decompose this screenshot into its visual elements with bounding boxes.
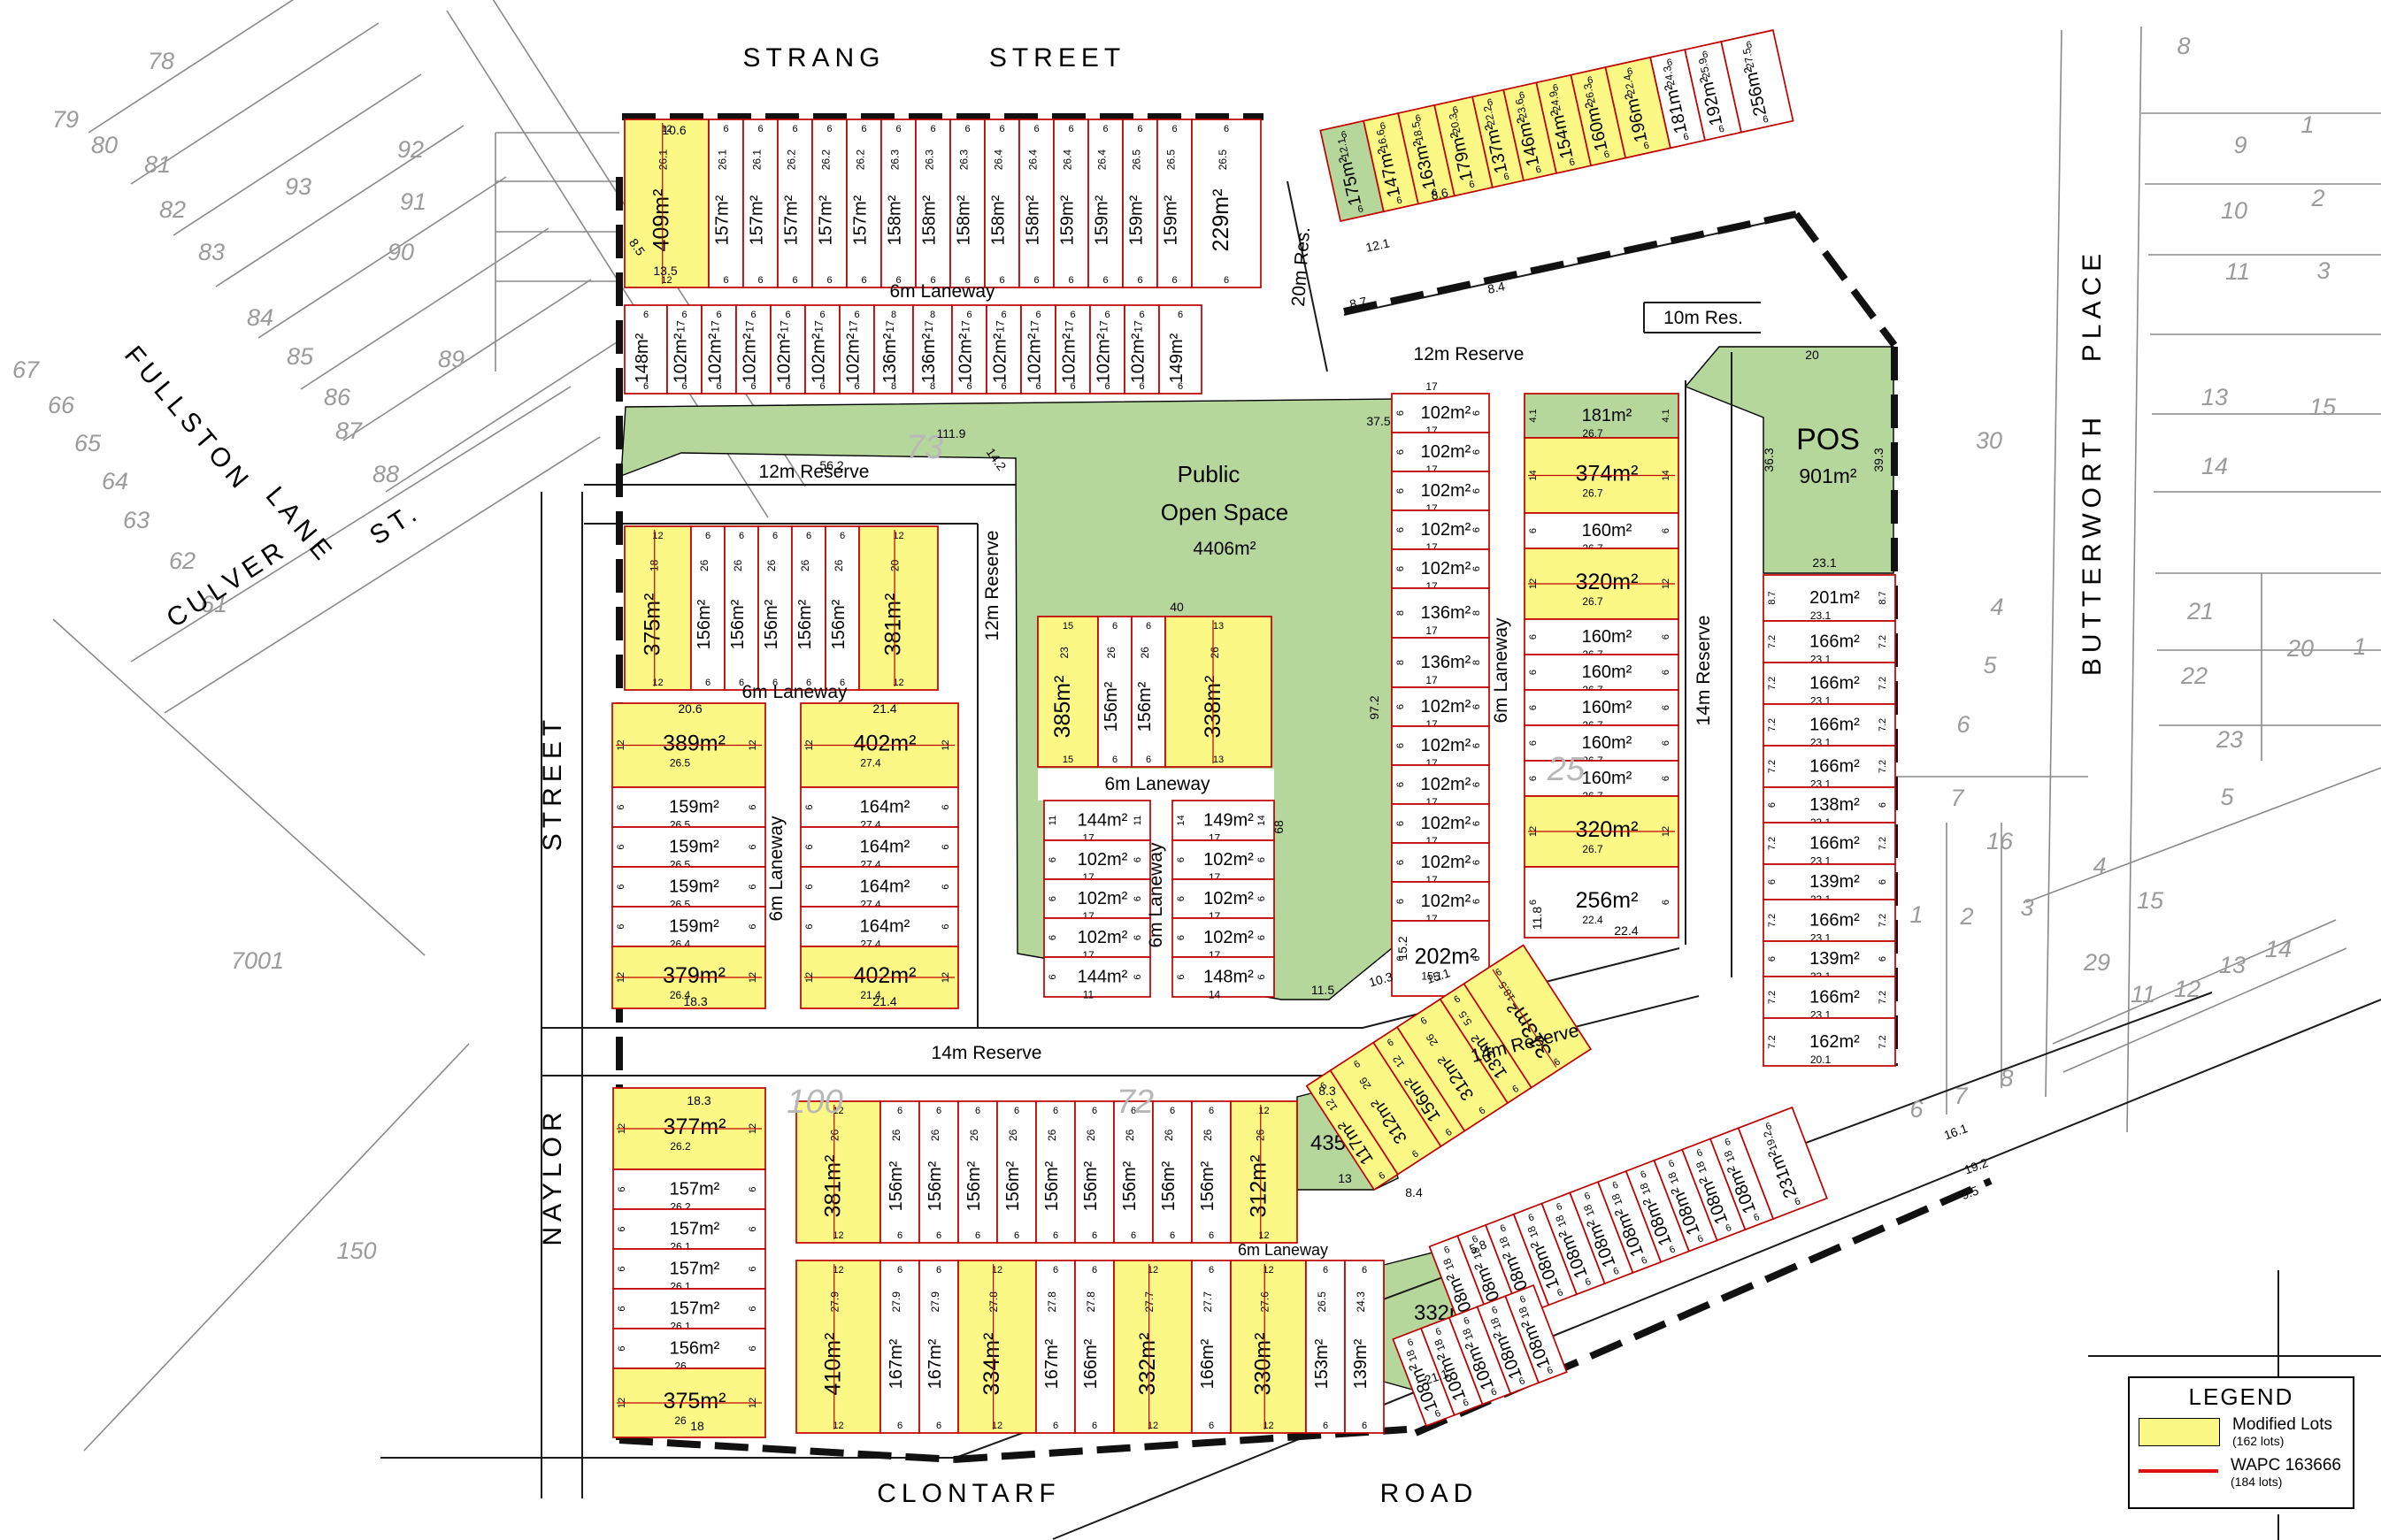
lot-dim: 17	[710, 320, 722, 333]
lot-edge-dim: 6	[748, 1226, 758, 1231]
lot-edge-dim: 8	[930, 381, 935, 392]
lot-area: 156m²	[887, 1161, 906, 1211]
cadastre-lot-number: 86	[324, 384, 351, 410]
lot-dim: 26.1	[657, 149, 670, 171]
lot-edge-dim: 6	[854, 310, 859, 320]
cadastre-lot-number: 64	[102, 468, 128, 494]
lot-edge-dim: 6	[748, 1306, 758, 1311]
cadastre-lot-number: 15	[2309, 394, 2337, 420]
lot-dim: 26	[833, 559, 845, 571]
lot-edge-dim: 6	[1133, 974, 1143, 979]
lot-area: 166m²	[1081, 1338, 1101, 1389]
lot-area: 102m²	[775, 333, 795, 383]
lot-edge-dim: 6	[1146, 755, 1151, 765]
lot-area: 102m²	[1078, 928, 1128, 947]
cadastre-lot-number: 22	[2180, 663, 2208, 689]
open-space-label: POS	[1796, 423, 1860, 456]
lot-dim: 17	[779, 320, 791, 333]
dimension-label: 111.9	[937, 426, 966, 441]
lot-edge-dim: 6	[1661, 900, 1671, 905]
lot-area: 159m²	[1093, 195, 1112, 245]
lot-edge-dim: 6	[1323, 1265, 1328, 1276]
cadastre-lot-number: 65	[74, 430, 102, 456]
lot-dim: 23	[1058, 647, 1071, 659]
lot-edge-dim: 8	[891, 310, 896, 320]
lot-edge-dim: 8	[1471, 660, 1482, 665]
lot-area: 385m²	[1050, 676, 1075, 739]
lot-dim: 26.5	[1131, 149, 1143, 171]
lot-edge-dim: 6	[1209, 1421, 1214, 1431]
lot-edge-dim: 6	[1171, 275, 1177, 286]
lot-edge-dim: 6	[1001, 310, 1006, 320]
lot-edge-dim: 6	[1878, 879, 1888, 885]
street-name: CLONTARF	[877, 1479, 1060, 1508]
lot-edge-dim: 6	[840, 531, 845, 541]
cadastre-lot-number: 63	[123, 507, 150, 533]
lot-edge-dim: 6	[785, 310, 790, 320]
lot-edge-dim: 6	[819, 310, 825, 320]
lot-edge-dim: 6	[705, 531, 710, 541]
lot-edge-dim: 6	[1131, 1230, 1136, 1241]
cadastre-lot-number: 4	[2093, 853, 2106, 879]
cadastre-lot-number: 14	[2265, 936, 2292, 962]
lot-dim: 26.4	[1027, 149, 1040, 171]
open-space-label: 901m²	[1799, 464, 1857, 487]
lot-edge-dim: 6	[1070, 381, 1075, 392]
lot-edge-dim: 6	[1102, 124, 1108, 134]
lot-edge-dim: 6	[1528, 776, 1539, 781]
lot-block-block-375-381: 375m²181212156m²2666156m²2666156m²266615…	[625, 526, 938, 690]
lot-dim: 26.2	[855, 149, 867, 171]
cadastre-lot-number: 90	[388, 239, 414, 265]
lot-area: 148m²	[1203, 968, 1254, 987]
lot-area: 330m²	[1251, 1333, 1276, 1396]
lot-area: 160m²	[1582, 698, 1632, 717]
lot-area: 166m²	[1809, 988, 1860, 1008]
lot-area: 102m²	[1129, 333, 1148, 383]
lot-dim: 20.1	[1810, 1053, 1832, 1066]
lot-area: 159m²	[669, 798, 719, 817]
lot-edge-dim: 6	[1256, 857, 1267, 862]
lot-edge-dim: 6	[1224, 124, 1229, 134]
lot-area: 139m²	[1351, 1338, 1371, 1389]
lot-edge-dim: 6	[1471, 821, 1482, 826]
lot-dim: 26.7	[1582, 595, 1603, 608]
lot-edge-dim: 6	[757, 124, 763, 134]
underlying-lot-watermark: 100	[787, 1084, 842, 1121]
lot-area: 256m²	[1576, 888, 1639, 913]
lot-edge-dim: 6	[941, 844, 951, 849]
lot-dim: 17	[813, 320, 826, 333]
lot-edge-dim: 6	[941, 884, 951, 889]
reserve-label: 6m Laneway	[1238, 1241, 1328, 1259]
street-name: STRANG	[742, 43, 885, 73]
lot-edge-dim: 6	[1033, 275, 1039, 286]
lot-block-block-385-338: 385m²231515156m²2666156m²2666338m²261313	[1038, 617, 1271, 767]
lot-area: 159m²	[669, 917, 719, 937]
lot-edge-dim: 6	[1048, 896, 1058, 901]
cadastre-lot-number: 150	[336, 1237, 376, 1264]
lot-edge-dim: 7.2	[1767, 718, 1778, 732]
lot-dim: 17	[923, 320, 935, 333]
lot-area: 402m²	[854, 963, 917, 988]
cadastre-lot-number: 3	[2316, 257, 2330, 284]
lot-edge-dim: 8	[1395, 660, 1406, 665]
cadastre-lot-number: 3	[2020, 894, 2033, 921]
lot-dim: 17	[1098, 320, 1110, 333]
lot-edge-dim: 7.2	[1767, 837, 1778, 850]
lot-edge-dim: 6	[1256, 935, 1267, 940]
reserve-label: 12m Reserve	[982, 531, 1002, 641]
lot-area: 167m²	[926, 1338, 945, 1389]
lot-edge-dim: 7.2	[1878, 837, 1888, 850]
lot-dim: 17	[848, 320, 860, 333]
lot-area: 375m²	[664, 1389, 726, 1414]
dimension-label: 97.2	[1367, 695, 1381, 719]
lot-edge-dim: 6	[826, 124, 832, 134]
lot-edge-dim: 6	[1362, 1265, 1367, 1276]
lot-dim: 26.2	[670, 1140, 691, 1153]
lot-edge-dim: 6	[723, 275, 728, 286]
lot-dim: 27.9	[890, 1291, 902, 1313]
lot-area: 158m²	[955, 195, 974, 245]
lot-edge-dim: 6	[1395, 488, 1406, 494]
lot-area: 102m²	[1060, 333, 1079, 383]
lot-area: 159m²	[1127, 195, 1147, 245]
lot-area: 156m²	[728, 599, 748, 649]
lot-area: 102m²	[1203, 889, 1254, 908]
lot-area: 181m²	[1582, 406, 1632, 425]
dimension-label: 15.2	[1395, 936, 1409, 960]
subdivision-plan-page: 435m²332m²409m²26.11212157m²26.166157m²2…	[0, 0, 2381, 1540]
lot-dim: 17	[675, 320, 687, 333]
lot-area: 166m²	[1809, 716, 1860, 735]
lot-area: 409m²	[649, 189, 674, 252]
lot-edge-dim: 6	[966, 310, 972, 320]
cadastre-lot-number: 1	[1909, 901, 1923, 928]
lot-edge-dim: 6	[716, 310, 721, 320]
dimension-label: 56.2	[819, 458, 843, 472]
cadastre-lot-number: 78	[148, 48, 174, 74]
cadastre-lot-number: 13	[2201, 384, 2228, 410]
cadastre-lot-number: 8	[2177, 33, 2190, 59]
lot-block-strang-row: 409m²26.11212157m²26.166157m²26.166157m²…	[625, 119, 1261, 287]
lot-edge-dim: 6	[1528, 900, 1539, 905]
cadastre-lot-number: 92	[397, 136, 424, 163]
lot-edge-dim: 6	[861, 275, 866, 286]
street-name: STREET	[989, 43, 1125, 73]
lot-dim: 17	[744, 320, 757, 333]
lot-edge-dim: 6	[1878, 802, 1888, 808]
lot-area: 156m²	[964, 1161, 984, 1211]
dimension-label: 68	[1271, 820, 1286, 834]
legend: LEGEND Modified Lots (162 lots) WAPC 163…	[2128, 1376, 2354, 1509]
lot-edge-dim: 6	[616, 844, 626, 849]
lot-edge-dim: 6	[1014, 1230, 1019, 1241]
dimension-label: 11.8	[1530, 907, 1544, 930]
lot-area: 159m²	[1058, 195, 1078, 245]
lot-edge-dim: 7.2	[1878, 635, 1888, 648]
lot-area: 334m²	[979, 1333, 1004, 1396]
lot-edge-dim: 6	[1048, 857, 1058, 862]
lot-edge-dim: 6	[1395, 527, 1406, 532]
lot-edge-dim: 6	[966, 381, 972, 392]
lot-area: 153m²	[1312, 1338, 1332, 1389]
lot-edge-dim: 6	[1176, 896, 1187, 901]
cadastre-lot-number: 89	[438, 346, 465, 372]
lot-area: 136m²	[1421, 653, 1471, 672]
dimension-label: 23.1	[1812, 555, 1836, 570]
lot-dim: 26	[1007, 1129, 1019, 1141]
reserve-label: 6m Laneway	[1146, 842, 1166, 948]
street-name: NAYLOR	[538, 1107, 567, 1245]
lot-edge-dim: 6	[1033, 124, 1039, 134]
lot-area: 156m²	[829, 599, 849, 649]
dimension-label: 22.4	[1614, 923, 1638, 938]
lot-edge-dim: 7.2	[1878, 914, 1888, 927]
lot-edge-dim: 6	[748, 1186, 758, 1191]
lot-edge-dim: 7.2	[1767, 1035, 1778, 1048]
lot-edge-dim: 6	[1035, 381, 1041, 392]
lot-dim: 26.5	[1217, 149, 1229, 171]
lot-area: 164m²	[860, 838, 910, 857]
lot-area: 156m²	[670, 1339, 720, 1359]
cadastre-lot-number: 91	[400, 188, 426, 215]
lot-edge-dim: 6	[1767, 802, 1778, 808]
cadastre-lot-number: 88	[373, 461, 399, 487]
open-space-label: Open Space	[1161, 499, 1289, 525]
lot-area: 402m²	[854, 732, 917, 756]
lot-edge-dim: 7.2	[1878, 718, 1888, 732]
lot-dim: 26	[1105, 647, 1118, 659]
reserve-label: 6m Laneway	[766, 816, 787, 922]
lot-block-col-102-center: 102m²1766102m²1766102m²1766102m²1766102m…	[1392, 394, 1489, 996]
lot-edge-dim: 6	[1528, 634, 1539, 640]
wapc-line-swatch	[2139, 1469, 2218, 1473]
dimension-label: 18	[690, 1419, 704, 1433]
legend-sublabel: (162 lots)	[2232, 1435, 2332, 1448]
lot-edge-dim: 7.2	[1878, 760, 1888, 773]
lot-dim: 26	[890, 1129, 902, 1141]
lot-area: 139m²	[1809, 872, 1860, 892]
lot-edge-dim: 6	[941, 804, 951, 809]
cadastre-lot-number: 84	[247, 304, 273, 331]
lot-area: 156m²	[795, 599, 815, 649]
lot-dim: 26.4	[1062, 149, 1074, 171]
lot-area: 102m²	[1421, 403, 1471, 423]
lot-edge-dim: 6	[772, 531, 778, 541]
lot-edge-dim: 6	[681, 310, 687, 320]
lot-dim: 14	[1209, 989, 1221, 1001]
dimension-label: 8.3	[1318, 1084, 1336, 1098]
lot-edge-dim: 6	[1053, 1421, 1058, 1431]
lot-edge-dim: 6	[804, 804, 815, 809]
lot-block-col-201-162: 201m²23.18.78.7166m²23.17.27.2166m²23.17…	[1763, 575, 1895, 1066]
cadastre-lot-number: 16	[1986, 828, 2014, 854]
lot-edge-dim: 8	[891, 381, 896, 392]
lot-dim: 27.4	[860, 757, 881, 770]
lot-dim: 26	[1085, 1129, 1097, 1141]
cadastre-lot-number: 85	[287, 343, 314, 370]
cadastre-lot-number: 20	[2286, 635, 2314, 662]
lot-edge-dim: 6	[705, 678, 710, 688]
lot-edge-dim: 6	[1001, 381, 1006, 392]
lot-dim: 26.2	[820, 149, 833, 171]
lot-dim: 26.7	[1582, 843, 1603, 855]
dimension-label: 13.5	[653, 264, 677, 278]
legend-sublabel: (184 lots)	[2231, 1475, 2341, 1489]
legend-item-wapc: WAPC 163666 (184 lots)	[2139, 1457, 2344, 1489]
reserve-label: 14m Reserve	[1694, 616, 1714, 726]
lot-area: 102m²	[810, 333, 829, 383]
lot-edge-dim: 6	[1133, 935, 1143, 940]
reserve-label: 6m Laneway	[1104, 774, 1210, 794]
lot-edge-dim: 6	[1171, 124, 1177, 134]
lot-area: 156m²	[1135, 681, 1155, 732]
lot-area: 157m²	[851, 195, 871, 245]
lot-dim: 26.3	[889, 149, 902, 171]
lot-edge-dim: 6	[1767, 879, 1778, 885]
cadastre-lot-number: 80	[91, 132, 118, 158]
lot-area: 332m²	[1135, 1333, 1160, 1396]
lot-edge-dim: 6	[1170, 1106, 1175, 1116]
lot-edge-dim: 7.2	[1878, 677, 1888, 690]
lot-dim: 27.8	[1046, 1291, 1058, 1313]
lot-edge-dim: 6	[1878, 956, 1888, 962]
lot-area: 157m²	[670, 1260, 720, 1279]
street-name: ROAD	[1380, 1479, 1479, 1508]
lot-block-col-402: 402m²27.41212164m²27.466164m²27.466164m²…	[801, 703, 958, 1008]
lot-area: 156m²	[1081, 1161, 1101, 1211]
cadastre-lot-number: 11	[2131, 981, 2155, 1008]
lot-edge-dim: 6	[936, 1421, 941, 1431]
cadastre-lot-number: 4	[1990, 594, 2003, 620]
lot-edge-dim: 6	[1256, 974, 1267, 979]
lot-edge-dim: 6	[643, 381, 649, 392]
lot-edge-dim: 6	[804, 844, 815, 849]
cadastre-lot-number: 79	[52, 106, 79, 133]
lot-edge-dim: 6	[1471, 410, 1482, 416]
lot-area: 148m²	[633, 333, 652, 383]
lot-area: 166m²	[1809, 674, 1860, 693]
lot-area: 162m²	[1809, 1032, 1860, 1052]
lot-edge-dim: 6	[617, 1345, 627, 1351]
lot-area: 375m²	[641, 594, 665, 656]
lot-edge-dim: 6	[748, 804, 758, 809]
lot-dim: 27.9	[929, 1291, 941, 1313]
lot-area: 156m²	[1003, 1161, 1023, 1211]
lot-edge-dim: 6	[941, 923, 951, 929]
dimension-label: 20.6	[678, 701, 702, 716]
lot-area: 102m²	[706, 333, 726, 383]
underlying-lot-watermark: 72	[1117, 1084, 1154, 1121]
lot-area: 102m²	[741, 333, 760, 383]
lot-edge-dim: 6	[1133, 857, 1143, 862]
lot-block-col-149: 149m²171414102m²1766102m²1766102m²176614…	[1172, 801, 1274, 1001]
lot-dim: 23.1	[1810, 609, 1832, 622]
lot-edge-dim: 6	[1112, 755, 1118, 765]
legend-label: WAPC 163666	[2231, 1457, 2341, 1475]
lot-dim: 26.4	[993, 149, 1005, 171]
lot-area: 379m²	[663, 963, 726, 988]
lot-area: 157m²	[817, 195, 836, 245]
cadastre-lot-number: 5	[2220, 784, 2234, 810]
lot-block-row-381-312: 381m²261212156m²2666156m²2666156m²266615…	[796, 1101, 1297, 1243]
lot-edge-dim: 6	[748, 884, 758, 889]
cadastre-lot-number: 6	[1909, 1096, 1924, 1122]
lot-edge-dim: 6	[861, 124, 866, 134]
lot-edge-dim: 6	[1661, 634, 1671, 640]
lot-area: 381m²	[821, 1155, 846, 1218]
reserve-label: 12m Reserve	[759, 462, 870, 482]
lot-edge-dim: 6	[936, 1265, 941, 1276]
legend-title: LEGEND	[2139, 1383, 2344, 1411]
lot-edge-dim: 6	[804, 923, 815, 929]
lot-dim: 22.4	[1582, 914, 1603, 926]
open-space-label: 4406m²	[1193, 539, 1256, 559]
lot-area: 157m²	[670, 1299, 720, 1319]
lot-area: 157m²	[670, 1220, 720, 1239]
lot-area: 160m²	[1582, 733, 1632, 753]
lot-edge-dim: 6	[964, 124, 970, 134]
lot-area: 159m²	[669, 838, 719, 857]
cadastre-lot-number: 7001	[231, 947, 284, 974]
lot-area: 166m²	[1809, 632, 1860, 652]
lot-edge-dim: 6	[1395, 449, 1406, 455]
lot-dim: 26.1	[717, 149, 729, 171]
lot-area: 160m²	[1582, 663, 1632, 682]
lot-edge-dim: 6	[1471, 955, 1482, 961]
lot-area: 160m²	[1582, 769, 1632, 788]
lot-dim: 26	[799, 559, 811, 571]
lot-edge-dim: 8.7	[1878, 591, 1888, 604]
lot-dim: 26	[929, 1129, 941, 1141]
lot-dim: 26	[1124, 1129, 1136, 1141]
street-name: PLACE	[2078, 249, 2107, 362]
lot-area: 320m²	[1576, 817, 1639, 842]
dimension-label: 39.3	[1871, 448, 1886, 471]
lot-edge-dim: 8	[930, 310, 935, 320]
lot-edge-dim: 6	[1146, 621, 1151, 632]
lot-dim: 17	[960, 320, 972, 333]
lot-edge-dim: 6	[617, 1186, 627, 1191]
lot-edge-dim: 6	[1471, 566, 1482, 571]
dimension-label: 13	[1338, 1171, 1352, 1185]
lot-edge-dim: 6	[748, 844, 758, 849]
lot-edge-dim: 6	[1528, 705, 1539, 710]
lot-area: 144m²	[1078, 811, 1128, 831]
street-name: STREET	[538, 715, 567, 851]
lot-edge-dim: 6	[716, 381, 721, 392]
underlying-lot-watermark: 25	[1547, 751, 1586, 788]
lot-edge-dim: 7.2	[1767, 635, 1778, 648]
lot-area: 377m²	[664, 1115, 726, 1139]
lot-edge-dim: 6	[681, 381, 687, 392]
lot-dim: 17	[995, 320, 1007, 333]
lot-edge-dim: 4.1	[1661, 409, 1671, 422]
lot-area: 158m²	[886, 195, 905, 245]
lot-edge-dim: 7.2	[1767, 677, 1778, 690]
lot-area: 102m²	[1421, 559, 1471, 578]
cadastre-lot-number: 93	[285, 173, 311, 200]
lot-area: 320m²	[1576, 570, 1639, 594]
lot-edge-dim: 6	[1471, 899, 1482, 904]
dimension-label: 18.3	[687, 1093, 710, 1107]
lot-area: 149m²	[1203, 811, 1254, 831]
cadastre-lot-number: 66	[48, 392, 75, 418]
lot-edge-dim: 8.7	[1767, 591, 1778, 604]
lot-area: 166m²	[1809, 757, 1860, 777]
